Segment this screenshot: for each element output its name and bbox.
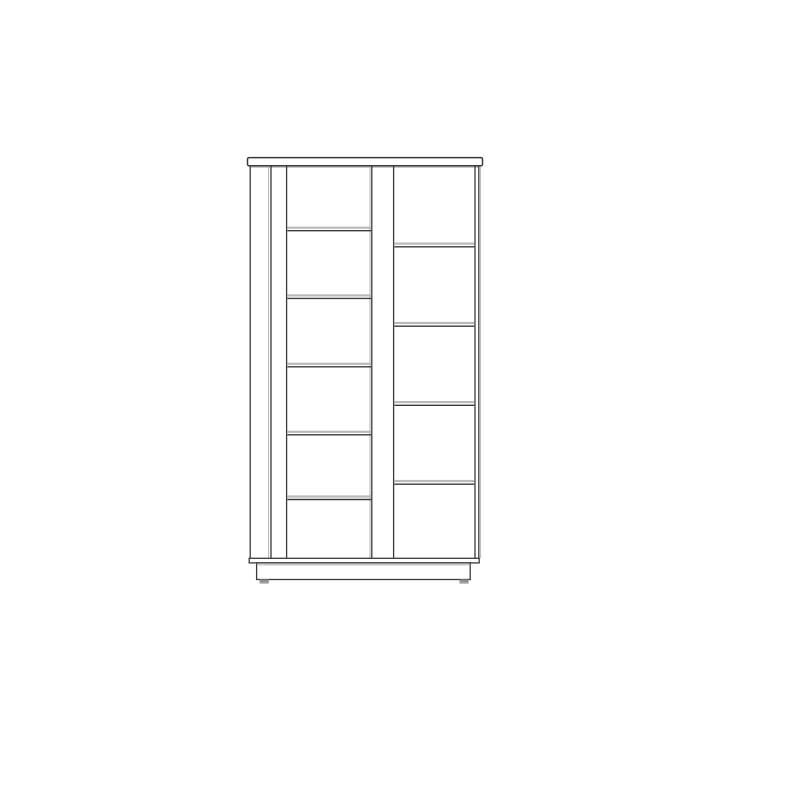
left-foot	[260, 579, 269, 582]
top-board	[248, 158, 483, 166]
right-shelf-2-top	[394, 322, 474, 324]
right-shelf-1-top	[394, 243, 474, 245]
plinth	[257, 563, 471, 580]
bottom-board	[249, 558, 479, 563]
left-shelf-5-top	[287, 495, 371, 497]
cabinet-line-drawing	[0, 0, 800, 800]
right-shelf-4-top	[394, 480, 474, 482]
left-shelf-2-top	[287, 294, 371, 296]
left-shelf-3-top	[287, 363, 371, 365]
right-shelf-3-top	[394, 401, 474, 403]
left-shelf-1-top	[287, 227, 371, 229]
right-foot	[459, 579, 468, 582]
drawing-canvas	[0, 0, 800, 800]
left-shelf-4-top	[287, 431, 371, 433]
